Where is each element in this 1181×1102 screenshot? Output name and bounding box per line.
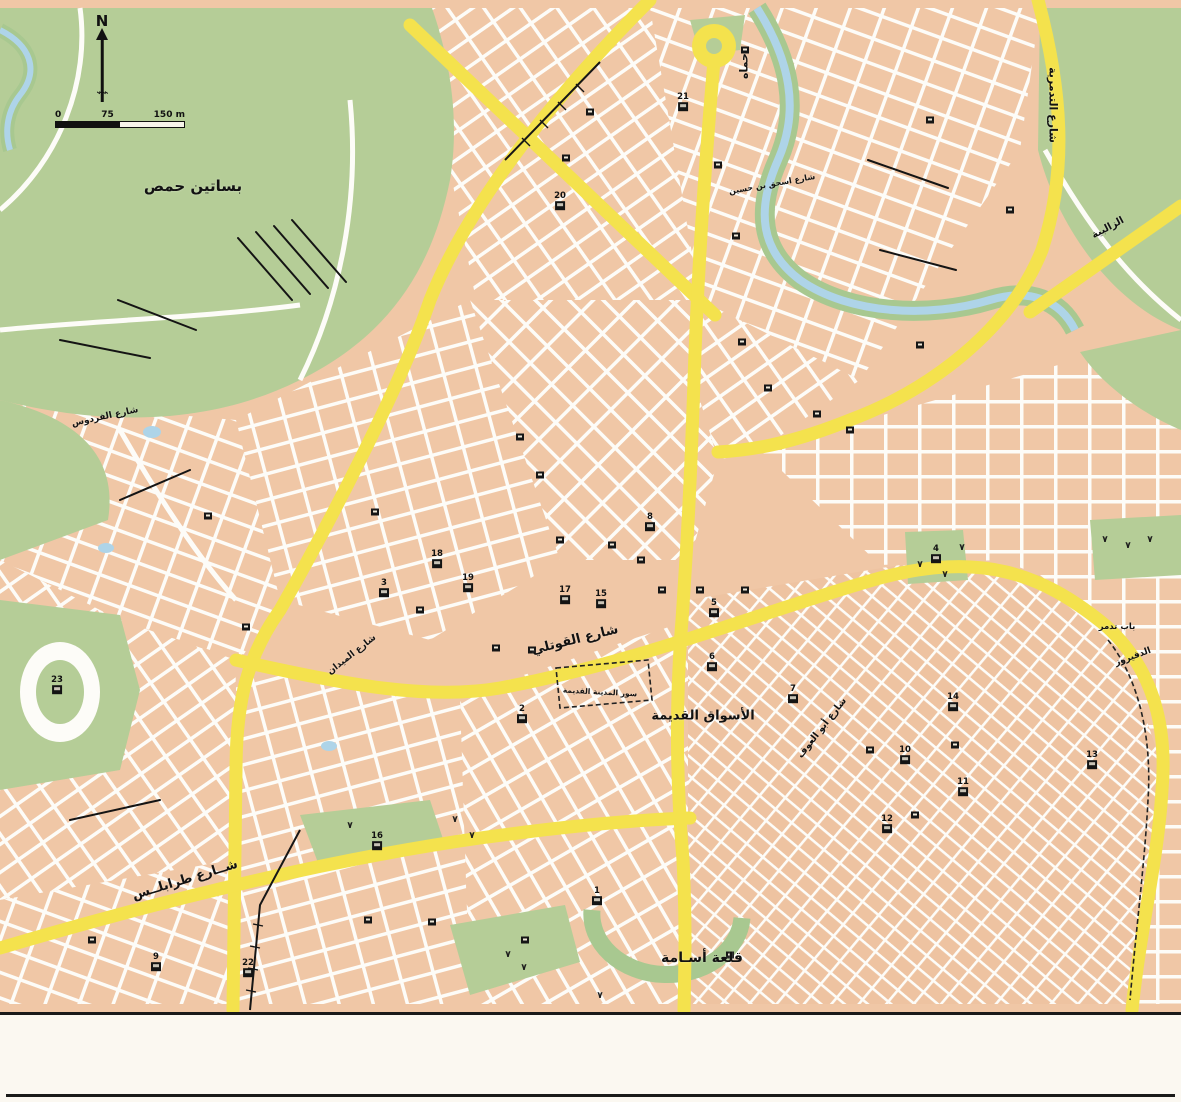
map-artwork xyxy=(0,0,1181,1012)
compass-north-arrow: N ⌁⌁ xyxy=(72,12,132,112)
stadium xyxy=(20,642,100,742)
north-arrow-feather: ⌁⌁ xyxy=(96,86,107,99)
homs-city-map-page: ٧٧٧٧٧٧٧٧٧٧٧٧ 123456789101112131415161718… xyxy=(0,0,1181,1102)
scale-bar: 0 75 150 m xyxy=(55,110,185,128)
legend-band: مدينة حمص فهرس المواقع السياحية في مدينة… xyxy=(0,1012,1181,1102)
map-canvas: ٧٧٧٧٧٧٧٧٧٧٧٧ 123456789101112131415161718… xyxy=(0,0,1181,1012)
roundabout-center xyxy=(706,38,722,54)
scale-tick-75: 75 xyxy=(101,110,114,120)
bottom-rule xyxy=(6,1094,1175,1097)
scale-tick-0: 0 xyxy=(55,110,61,120)
scale-bar-segments xyxy=(55,121,185,128)
scale-tick-150: 150 m xyxy=(154,110,185,120)
